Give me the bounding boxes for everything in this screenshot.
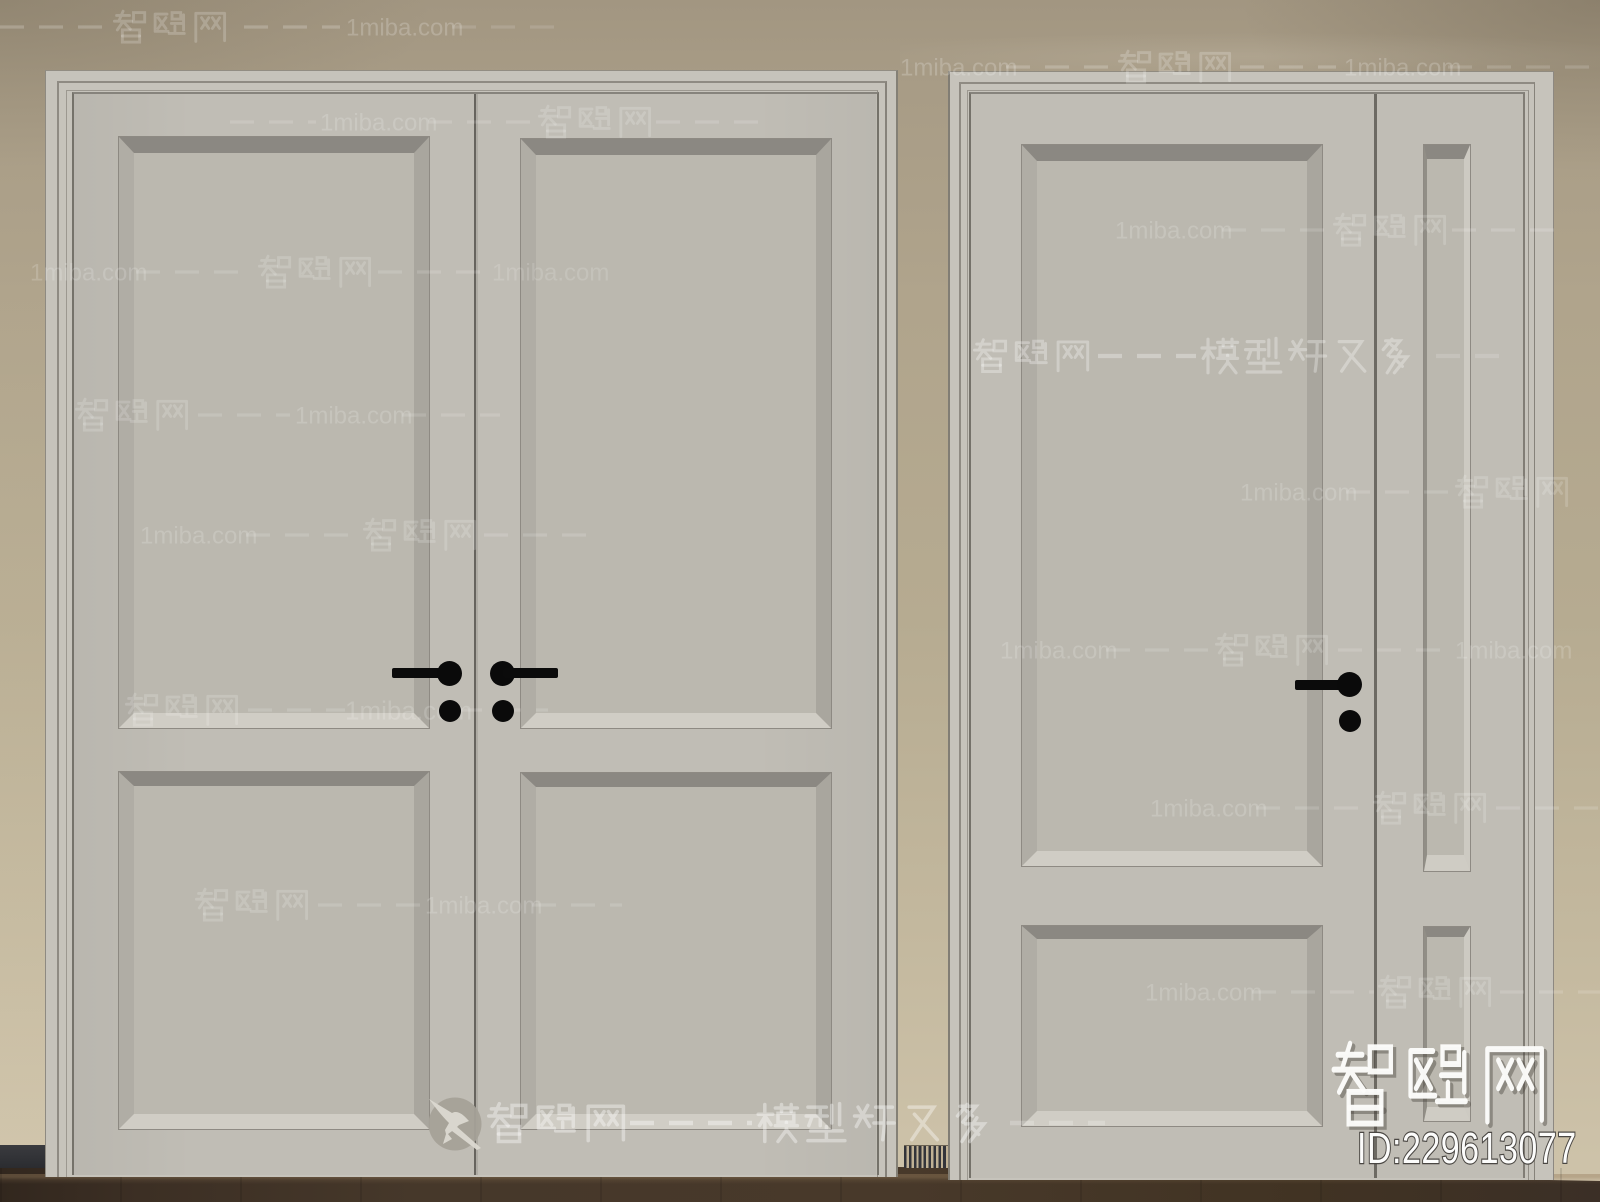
svg-text:1miba.com: 1miba.com	[492, 260, 609, 287]
svg-text:1miba.com: 1miba.com	[30, 260, 147, 287]
svg-text:1miba.com: 1miba.com	[295, 403, 412, 430]
svg-text:1miba.com: 1miba.com	[140, 523, 257, 550]
svg-text:1miba.com: 1miba.com	[900, 55, 1017, 82]
svg-text:1miba.com: 1miba.com	[1115, 218, 1232, 245]
svg-text:1miba.com: 1miba.com	[320, 110, 437, 137]
svg-text:1miba.com: 1miba.com	[346, 15, 463, 42]
svg-text:1miba.com: 1miba.com	[1150, 796, 1267, 823]
svg-text:ID:229613077: ID:229613077	[1357, 1125, 1577, 1173]
svg-text:1miba.com: 1miba.com	[1455, 638, 1572, 665]
svg-text:1miba.com: 1miba.com	[1240, 480, 1357, 507]
svg-text:1miba.com: 1miba.com	[1344, 55, 1461, 82]
svg-text:1miba.com: 1miba.com	[425, 893, 542, 920]
svg-text:1miba.com: 1miba.com	[1145, 980, 1262, 1007]
svg-text:1miba.com: 1miba.com	[1000, 638, 1117, 665]
